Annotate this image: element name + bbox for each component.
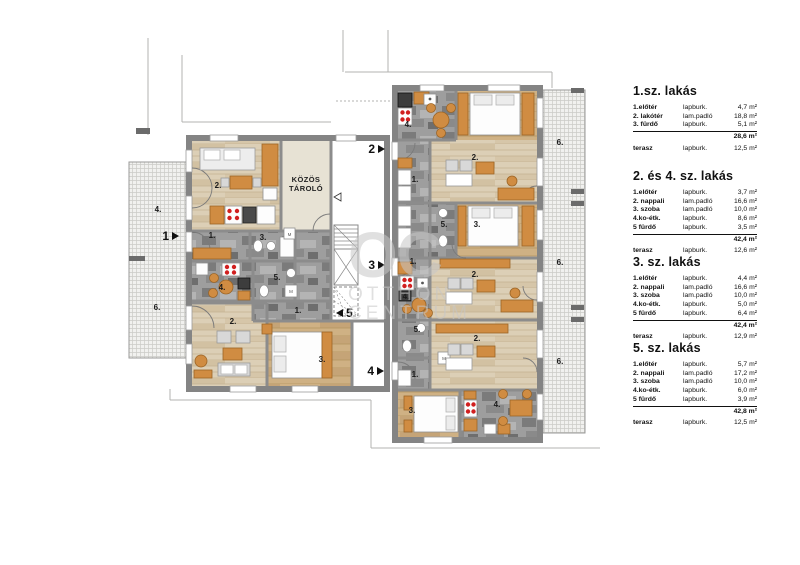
room-finish: lam.padló bbox=[683, 198, 719, 207]
terrace-row: teraszlapburk.12,5 m² bbox=[633, 419, 757, 428]
room-name: 3. szoba bbox=[633, 378, 683, 387]
room-label: 6. bbox=[557, 357, 564, 366]
room-label: 3. bbox=[474, 220, 481, 229]
room-name: terasz bbox=[633, 145, 683, 154]
room-name: 2. nappali bbox=[633, 284, 683, 293]
room-name: 2. nappali bbox=[633, 198, 683, 207]
entrance-number: 4 bbox=[367, 364, 374, 378]
room-name: 4.ko-étk. bbox=[633, 387, 683, 396]
apartment-listing: 2. és 4. sz. lakás1.előtérlapburk.3,7 m²… bbox=[633, 169, 757, 256]
balcony-divider bbox=[136, 128, 150, 134]
room-row: 2. lakótérlam.padló18,8 m² bbox=[633, 113, 757, 122]
total-spacer bbox=[683, 236, 719, 245]
room-row: 4.ko-étk.lapburk.8,6 m² bbox=[633, 215, 757, 224]
terrace-divider bbox=[571, 305, 584, 310]
room-label: 1. bbox=[209, 231, 216, 240]
room-finish: lapburk. bbox=[683, 189, 719, 198]
room-finish: lapburk. bbox=[683, 275, 719, 284]
room-name: 1.előtér bbox=[633, 189, 683, 198]
terrace-divider bbox=[571, 88, 584, 93]
room-area: 18,8 m² bbox=[719, 113, 757, 122]
room-name: 3. fürdő bbox=[633, 121, 683, 130]
entrance-number: 5 bbox=[346, 306, 353, 320]
room-row: 5 fürdőlapburk.6,4 m² bbox=[633, 310, 757, 319]
terrace-divider bbox=[571, 317, 584, 322]
room-row: 4.ko-étk.lapburk.5,0 m² bbox=[633, 301, 757, 310]
room-name: 3. szoba bbox=[633, 292, 683, 301]
total-area: 42,8 m² bbox=[719, 408, 757, 417]
total-spacer bbox=[633, 236, 683, 245]
listing-title: 3. sz. lakás bbox=[633, 255, 757, 269]
terrace-left bbox=[129, 128, 186, 358]
room-label: 4. bbox=[494, 400, 501, 409]
entrance-number: 3 bbox=[368, 258, 375, 272]
terrace-divider bbox=[129, 256, 145, 261]
room-area: 10,0 m² bbox=[719, 206, 757, 215]
terrace-divider bbox=[571, 189, 584, 194]
room-label: 2. bbox=[472, 270, 479, 279]
room-label: 2. bbox=[230, 317, 237, 326]
room-area: 16,6 m² bbox=[719, 284, 757, 293]
room-finish: lapburk. bbox=[683, 396, 719, 405]
room-area: 5,1 m² bbox=[719, 121, 757, 130]
total-spacer bbox=[633, 408, 683, 417]
room-name: 2. lakótér bbox=[633, 113, 683, 122]
room-label: 5. bbox=[274, 273, 281, 282]
terrace-row: teraszlapburk.12,5 m² bbox=[633, 145, 757, 154]
room-finish: lapburk. bbox=[683, 301, 719, 310]
room-name: 1.előtér bbox=[633, 104, 683, 113]
apartment-listing: 5. sz. lakás1.előtérlapburk.5,7 m²2. nap… bbox=[633, 341, 757, 428]
room-row: 1.előtérlapburk.4,4 m² bbox=[633, 275, 757, 284]
room-label: 6. bbox=[557, 258, 564, 267]
room-area: 12,5 m² bbox=[719, 419, 757, 428]
room-area: 10,0 m² bbox=[719, 292, 757, 301]
room-label: 4. bbox=[403, 292, 410, 301]
room-row: 4.ko-étk.lapburk.6,0 m² bbox=[633, 387, 757, 396]
entrance-number: 1 bbox=[162, 229, 169, 243]
room-area: 4,4 m² bbox=[719, 275, 757, 284]
total-area: 42,4 m² bbox=[719, 236, 757, 245]
room-finish: lapburk. bbox=[683, 310, 719, 319]
room-label: 5. bbox=[414, 325, 421, 334]
room-finish: lapburk. bbox=[683, 224, 719, 233]
room-name: terasz bbox=[633, 419, 683, 428]
room-finish: lam.padló bbox=[683, 113, 719, 122]
room-finish: lapburk. bbox=[683, 215, 719, 224]
terrace-right bbox=[543, 88, 585, 433]
room-label: 1. bbox=[412, 175, 419, 184]
room-finish: lapburk. bbox=[683, 361, 719, 370]
room-label: 6. bbox=[154, 303, 161, 312]
room-area: 6,4 m² bbox=[719, 310, 757, 319]
common-storage-line2: TÁROLÓ bbox=[289, 184, 323, 193]
room-row: 3. szobalam.padló10,0 m² bbox=[633, 378, 757, 387]
listing-total-row: 42,4 m² bbox=[633, 234, 757, 245]
room-area: 12,5 m² bbox=[719, 145, 757, 154]
listing-total-row: 42,8 m² bbox=[633, 406, 757, 417]
room-name: 4.ko-étk. bbox=[633, 215, 683, 224]
room-name: 5 fürdő bbox=[633, 224, 683, 233]
room-label: 2. bbox=[215, 181, 222, 190]
room-area: 5,7 m² bbox=[719, 361, 757, 370]
washer-m-label: M bbox=[288, 232, 292, 237]
listing-title: 5. sz. lakás bbox=[633, 341, 757, 355]
room-label: 1. bbox=[295, 306, 302, 315]
room-row: 1.előtérlapburk.5,7 m² bbox=[633, 361, 757, 370]
room-finish: lapburk. bbox=[683, 145, 719, 154]
room-finish: lapburk. bbox=[683, 104, 719, 113]
terrace-divider bbox=[571, 201, 584, 206]
room-label: 6. bbox=[557, 138, 564, 147]
total-spacer bbox=[633, 133, 683, 142]
floorplan-page: M M M KÖZÖS TÁROLÓ 2.4.1.3.4.5.6.1.2.3.4… bbox=[0, 0, 800, 565]
entrance-number: 2 bbox=[368, 142, 375, 156]
room-row: 3. fürdőlapburk.5,1 m² bbox=[633, 121, 757, 130]
room-area: 3,9 m² bbox=[719, 396, 757, 405]
room-area: 6,0 m² bbox=[719, 387, 757, 396]
room-name: 5 fürdő bbox=[633, 396, 683, 405]
room-area: 5,0 m² bbox=[719, 301, 757, 310]
room-finish: lam.padló bbox=[683, 284, 719, 293]
room-row: 5 fürdőlapburk.3,5 m² bbox=[633, 224, 757, 233]
total-spacer bbox=[633, 322, 683, 331]
total-spacer bbox=[683, 408, 719, 417]
room-label: 4. bbox=[155, 205, 162, 214]
room-label: 4. bbox=[405, 120, 412, 129]
room-area: 10,0 m² bbox=[719, 378, 757, 387]
room-area: 17,2 m² bbox=[719, 370, 757, 379]
room-row: 3. szobalam.padló10,0 m² bbox=[633, 206, 757, 215]
room-label: 4. bbox=[219, 283, 226, 292]
room-finish: lam.padló bbox=[683, 206, 719, 215]
washer-m-label: M bbox=[289, 289, 293, 294]
room-label: 3. bbox=[319, 355, 326, 364]
total-spacer bbox=[683, 133, 719, 142]
room-area: 4,7 m² bbox=[719, 104, 757, 113]
listing-total-row: 42,4 m² bbox=[633, 320, 757, 331]
room-finish: lam.padló bbox=[683, 292, 719, 301]
room-label: 2. bbox=[474, 334, 481, 343]
washer-m-label: M bbox=[442, 356, 446, 361]
room-name: 1.előtér bbox=[633, 361, 683, 370]
total-area: 42,4 m² bbox=[719, 322, 757, 331]
listing-total-row: 28,6 m² bbox=[633, 131, 757, 142]
room-row: 2. nappalilam.padló16,6 m² bbox=[633, 198, 757, 207]
apartment-listing: 3. sz. lakás1.előtérlapburk.4,4 m²2. nap… bbox=[633, 255, 757, 342]
total-area: 28,6 m² bbox=[719, 133, 757, 142]
room-name: 2. nappali bbox=[633, 370, 683, 379]
room-finish: lapburk. bbox=[683, 121, 719, 130]
room-row: 2. nappalilam.padló17,2 m² bbox=[633, 370, 757, 379]
common-storage-line1: KÖZÖS bbox=[292, 175, 321, 184]
room-finish: lapburk. bbox=[683, 419, 719, 428]
room-row: 2. nappalilam.padló16,6 m² bbox=[633, 284, 757, 293]
room-finish: lapburk. bbox=[683, 387, 719, 396]
room-label: 2. bbox=[472, 153, 479, 162]
room-label: 1. bbox=[410, 257, 417, 266]
room-label: 5. bbox=[441, 220, 448, 229]
room-row: 1.előtérlapburk.3,7 m² bbox=[633, 189, 757, 198]
room-row: 1.előtérlapburk.4,7 m² bbox=[633, 104, 757, 113]
listing-title: 2. és 4. sz. lakás bbox=[633, 169, 757, 183]
room-area: 8,6 m² bbox=[719, 215, 757, 224]
room-label: 3. bbox=[409, 406, 416, 415]
room-area: 3,5 m² bbox=[719, 224, 757, 233]
room-row: 3. szobalam.padló10,0 m² bbox=[633, 292, 757, 301]
listing-title: 1.sz. lakás bbox=[633, 84, 757, 98]
common-storage-label: KÖZÖS TÁROLÓ bbox=[289, 175, 323, 193]
room-label: 3. bbox=[260, 233, 267, 242]
room-name: 4.ko-étk. bbox=[633, 301, 683, 310]
room-label: 1. bbox=[412, 370, 419, 379]
total-spacer bbox=[683, 322, 719, 331]
room-name: 5 fürdő bbox=[633, 310, 683, 319]
room-name: 1.előtér bbox=[633, 275, 683, 284]
room-name: 3. szoba bbox=[633, 206, 683, 215]
room-finish: lam.padló bbox=[683, 378, 719, 387]
room-row: 5 fürdőlapburk.3,9 m² bbox=[633, 396, 757, 405]
room-finish: lam.padló bbox=[683, 370, 719, 379]
room-area: 16,6 m² bbox=[719, 198, 757, 207]
room-area: 3,7 m² bbox=[719, 189, 757, 198]
apartment-listing: 1.sz. lakás1.előtérlapburk.4,7 m²2. lakó… bbox=[633, 84, 757, 154]
